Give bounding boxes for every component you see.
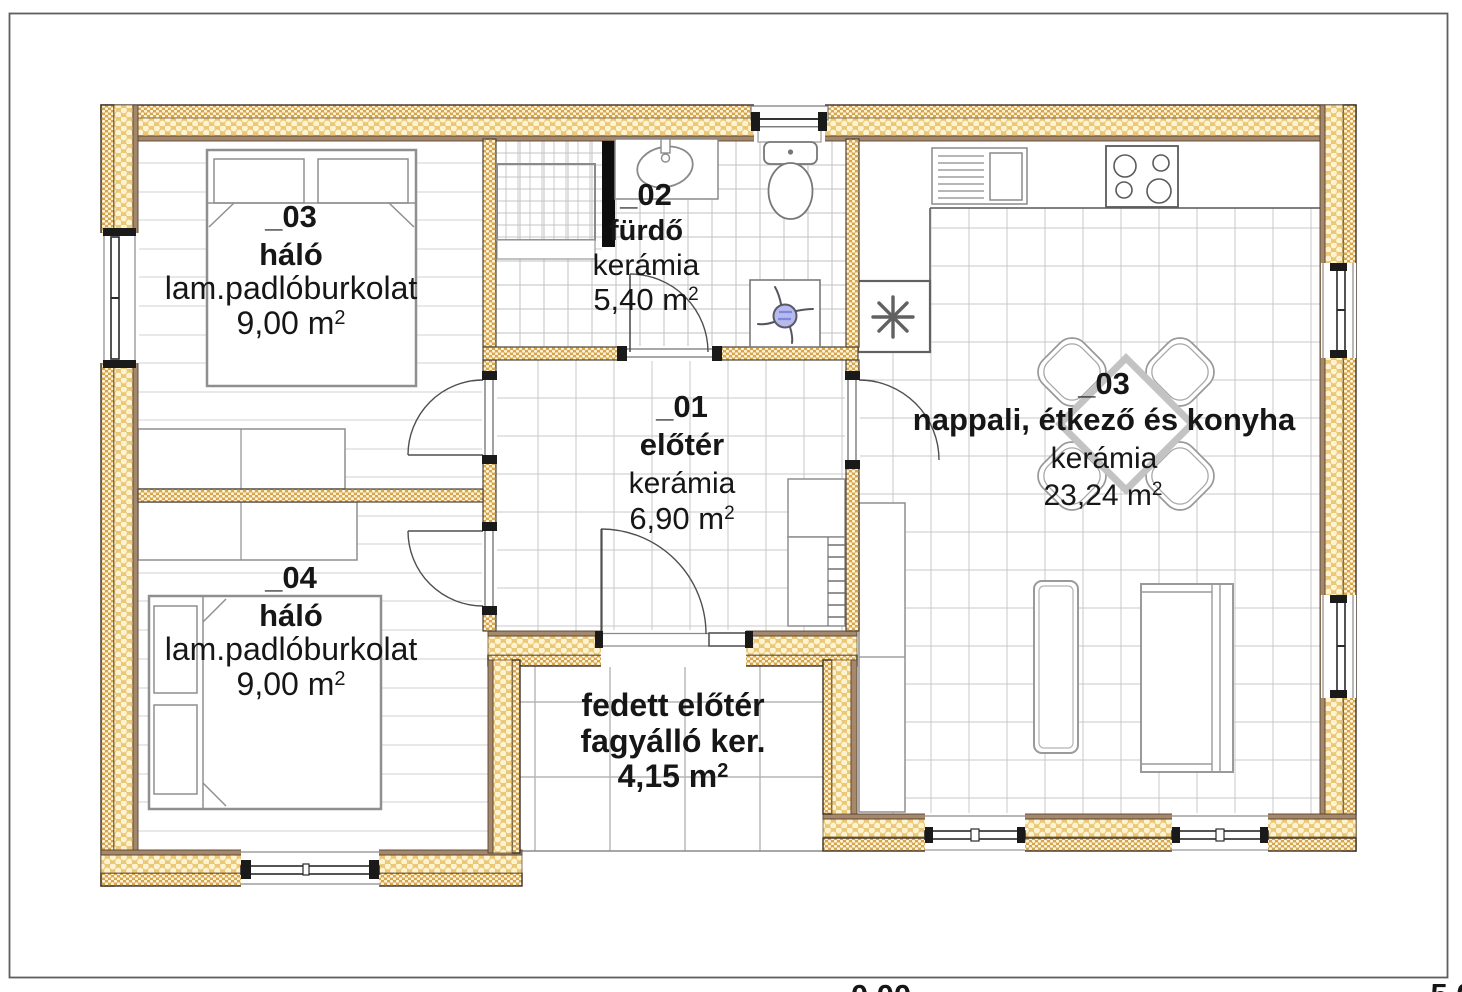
svg-text:_01: _01	[655, 389, 708, 424]
svg-text:lam.padlóburkolat: lam.padlóburkolat	[165, 270, 418, 306]
svg-text:lam.padlóburkolat: lam.padlóburkolat	[165, 631, 418, 667]
svg-text:nappali, étkező és konyha: nappali, étkező és konyha	[913, 402, 1296, 437]
svg-text:fagyálló ker.: fagyálló ker.	[581, 723, 766, 759]
svg-text:kerámia: kerámia	[1051, 442, 1158, 475]
svg-text:6,90 m2: 6,90 m2	[629, 501, 734, 536]
svg-text:9,00 m2: 9,00 m2	[237, 666, 346, 702]
svg-text:23,24 m2: 23,24 m2	[1044, 479, 1163, 512]
svg-text:_04: _04	[264, 560, 317, 595]
svg-text:háló: háló	[259, 237, 323, 272]
svg-text:5,40 m2: 5,40 m2	[593, 282, 698, 317]
svg-text:0,00: 0,00	[851, 978, 911, 992]
svg-text:kerámia: kerámia	[629, 467, 736, 500]
svg-text:fedett előtér: fedett előtér	[581, 687, 764, 723]
svg-text:előtér: előtér	[640, 427, 724, 462]
svg-text:_02: _02	[619, 177, 672, 212]
svg-text:_03: _03	[1077, 366, 1130, 401]
svg-text:kerámia: kerámia	[593, 249, 700, 282]
svg-text:9,00 m2: 9,00 m2	[237, 305, 346, 341]
svg-text:4,15 m2: 4,15 m2	[618, 758, 729, 794]
svg-text:_03: _03	[264, 199, 317, 234]
svg-text:fürdő: fürdő	[609, 215, 683, 247]
svg-text:háló: háló	[259, 598, 323, 633]
svg-text:5,0: 5,0	[1430, 977, 1462, 992]
